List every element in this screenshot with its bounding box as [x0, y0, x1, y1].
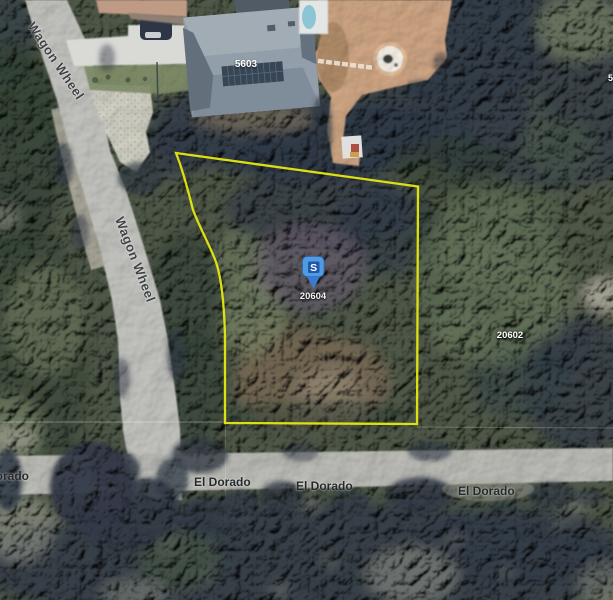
svg-text:56: 56	[608, 73, 613, 83]
svg-text:S: S	[310, 262, 317, 274]
svg-text:El Dorado: El Dorado	[458, 484, 515, 498]
svg-text:El Dorado: El Dorado	[296, 479, 353, 493]
svg-text:El Dorado: El Dorado	[194, 475, 251, 489]
svg-text:Dorado: Dorado	[0, 469, 29, 483]
svg-text:20602: 20602	[497, 330, 523, 341]
svg-text:5603: 5603	[235, 59, 258, 70]
svg-text:20604: 20604	[300, 291, 327, 302]
